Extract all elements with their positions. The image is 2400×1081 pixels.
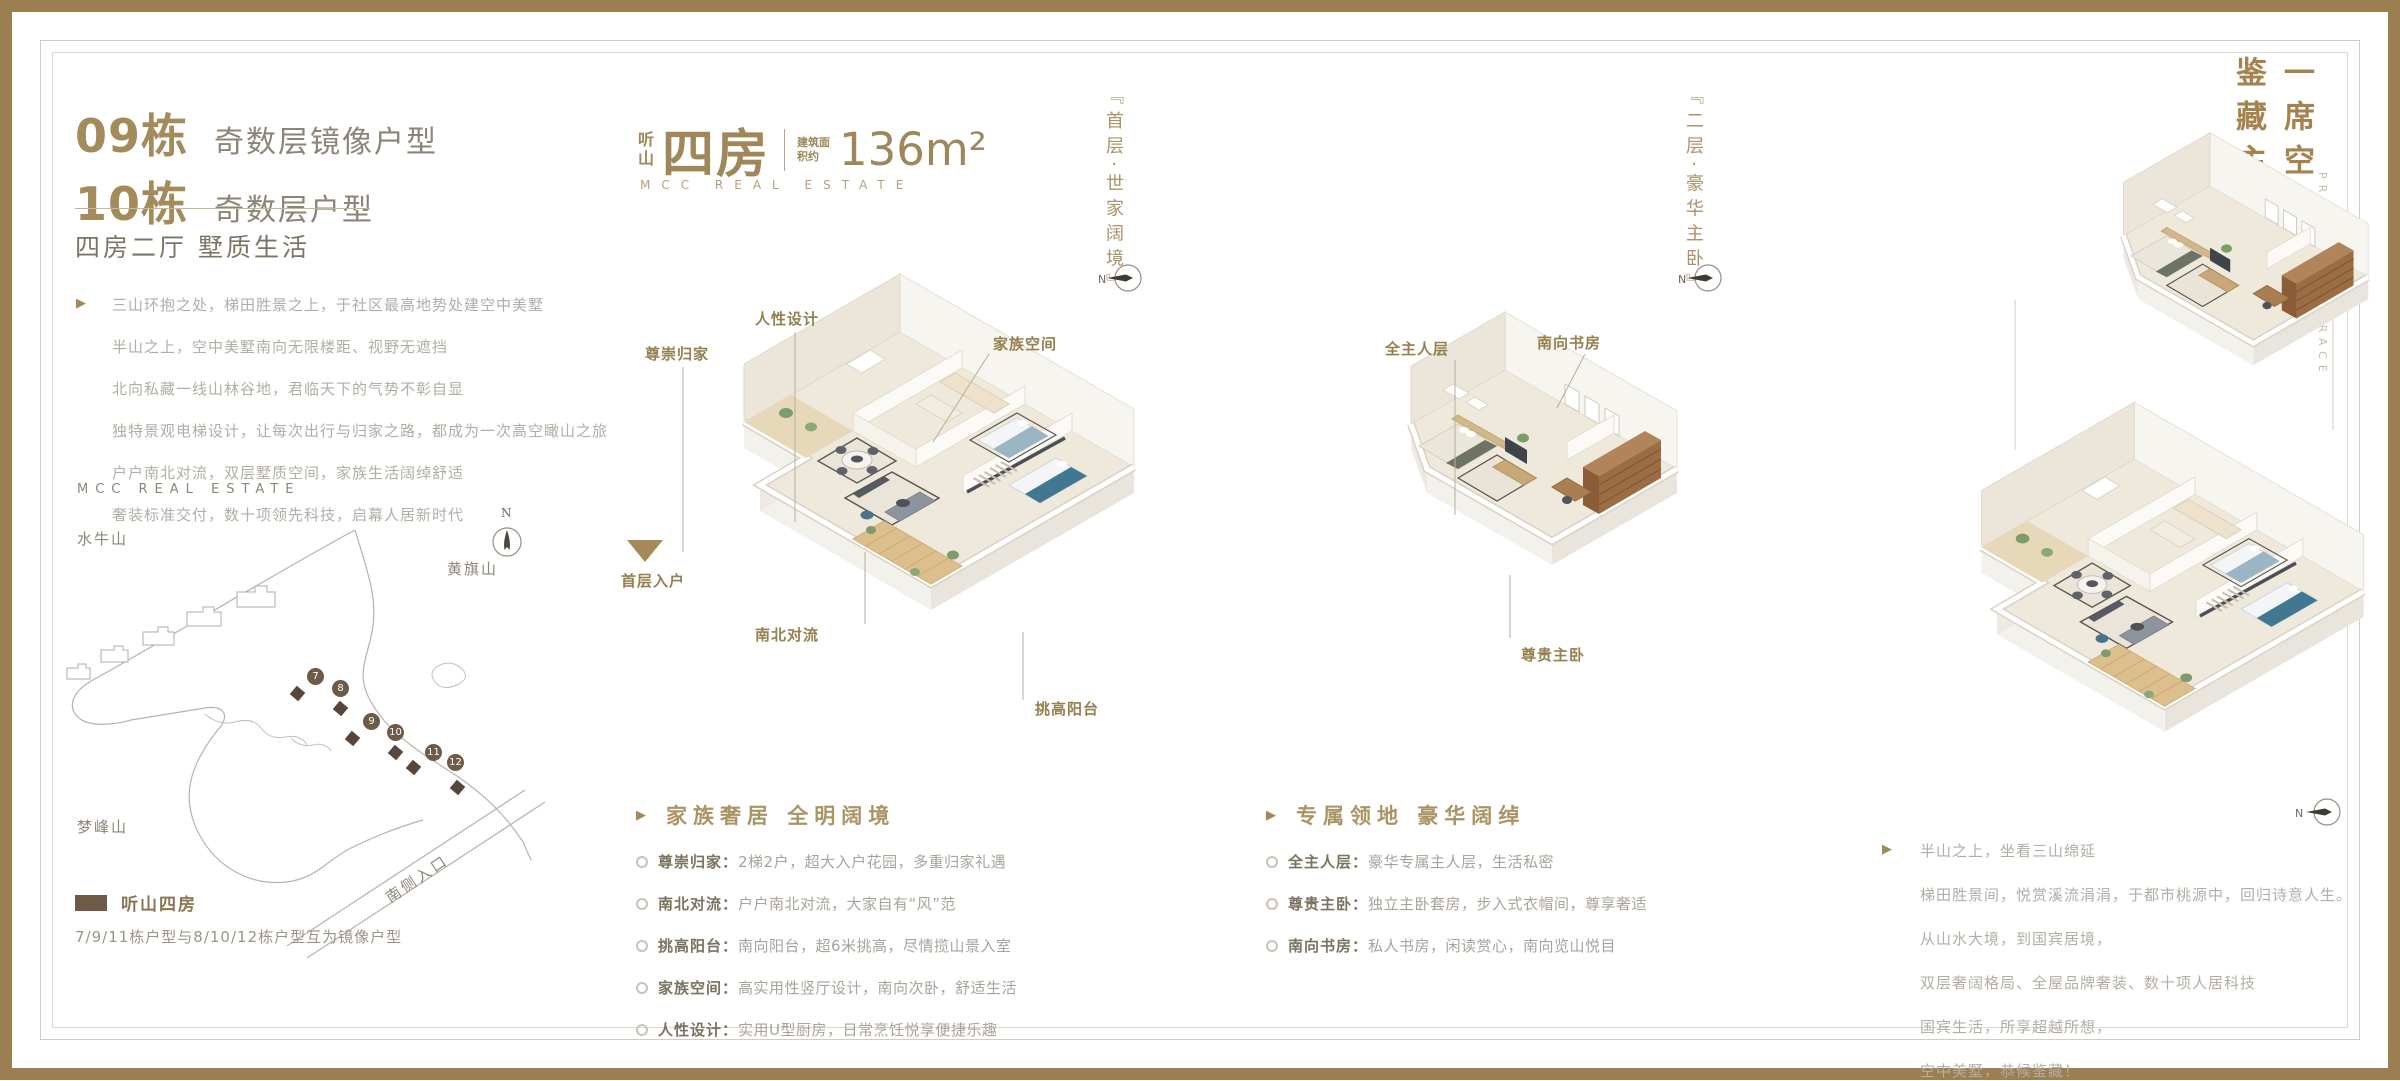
item-dot-icon: [1266, 898, 1278, 910]
unit-subtitle: 四房二厅 墅质生活: [75, 228, 310, 264]
building-09-number: 09栋: [75, 100, 188, 166]
building-10-number: 10栋: [75, 168, 188, 234]
heading-divider: [75, 208, 370, 209]
feature-item: 南北对流：户户南北对流，大家自有“风”范: [636, 893, 996, 914]
brochure-page: { "left": { "block1_num": "09栋", "block1…: [0, 0, 2400, 1080]
item-dot-icon: [636, 982, 648, 994]
item-label: 全主人层：: [1288, 851, 1368, 872]
intro-line: 北向私藏一线山林谷地，君临天下的气势不彰自显: [112, 378, 608, 399]
item-dot-icon: [636, 856, 648, 868]
legend-swatch: [75, 895, 107, 911]
building-09-type: 奇数层镜像户型: [214, 117, 438, 161]
floor2-label-zungui: 尊贵主卧: [1521, 646, 1585, 664]
feature-item: 家族空间：高实用性竖厅设计，南向次卧，舒适生活: [636, 977, 996, 998]
map-mountain-northwest: 水牛山: [77, 528, 128, 549]
building-number-7: 7: [307, 668, 324, 685]
list-arrow-icon: ▶: [636, 808, 652, 823]
map-mountain-southwest: 梦峰山: [77, 816, 128, 837]
floor1-label-jiazu: 家族空间: [993, 335, 1057, 353]
item-label: 尊贵主卧：: [1288, 893, 1368, 914]
outro-line: 梯田胜景间，悦赏溪流涓涓，于都市桃源中，回归诗意人生。: [1920, 884, 2352, 905]
intro-line: 独特景观电梯设计，让每次出行与归家之路，都成为一次高空瞰山之旅: [112, 420, 608, 441]
outro-line: 国宾生活，所享超越所想，: [1920, 1016, 2352, 1037]
floor1-list-heading: 家族奢居 全明阔境: [666, 800, 895, 830]
intro-line: 户户南北对流，双层墅质空间，家族生活阔绰舒适: [112, 462, 608, 483]
map-legend: 听山四房: [75, 890, 197, 915]
brand-wordmark: MCC REAL ESTATE: [77, 482, 300, 497]
feature-item: 尊贵主卧：独立主卧套房，步入式衣帽间，尊享奢适: [1266, 893, 1626, 914]
item-dot-icon: [636, 898, 648, 910]
item-dot-icon: [1266, 940, 1278, 952]
floor2-list-heading: 专属领地 豪华阔绰: [1296, 800, 1525, 830]
feature-item: 尊崇归家：2梯2户，超大入户花园，多重归家礼遇: [636, 851, 996, 872]
item-label: 家族空间：: [658, 977, 738, 998]
item-text: 实用U型厨房，日常烹饪悦享便捷乐趣: [738, 1019, 997, 1040]
product-title: 听山 四房 建筑面积约 136m²: [638, 112, 987, 187]
floor1-entry-label: 首层入户: [621, 572, 685, 590]
product-title-brand: MCC REAL ESTATE: [640, 178, 914, 192]
svg-text:N: N: [1678, 273, 1686, 286]
outro-line: 空中美墅，恭候鉴藏！: [1920, 1060, 2352, 1081]
item-label: 人性设计：: [658, 1019, 738, 1040]
site-map: N 水牛山 黄旗山 梦峰山 南侧入口 7 8 9 10 11 12 听山四房 7…: [55, 500, 575, 960]
item-text: 户户南北对流，大家自有“风”范: [738, 893, 956, 914]
product-title-main: 四房: [662, 112, 770, 187]
duplex-render: N: [1865, 120, 2395, 840]
product-title-prefix: 听山: [638, 131, 656, 168]
outro-line: 双层奢阔格局、全屋品牌奢装、数十项人居科技: [1920, 972, 2352, 993]
area-badge: 建筑面积约: [797, 136, 833, 164]
outro-line: 从山水大境，到国宾居境，: [1920, 928, 2352, 949]
building-number-9: 9: [363, 713, 380, 730]
outro-arrow-icon: ▶: [1882, 842, 1892, 857]
item-text: 独立主卧套房，步入式衣帽间，尊享奢适: [1368, 893, 1647, 914]
item-text: 豪华专属主人层，生活私密: [1368, 851, 1554, 872]
area-value: 136m²: [839, 123, 987, 176]
floor1-label-tiaogao: 挑高阳台: [1035, 700, 1099, 718]
feature-item: 挑高阳台：南向阳台，超6米挑高，尽情揽山景入室: [636, 935, 996, 956]
building-number-12: 12: [447, 754, 464, 771]
floor2-list-heading-row: ▶ 专属领地 豪华阔绰: [1266, 800, 1626, 830]
map-mountain-east: 黄旗山: [447, 558, 498, 579]
feature-item: 全主人层：豪华专属主人层，生活私密: [1266, 851, 1626, 872]
intro-line: 三山环抱之处，梯田胜景之上，于社区最高地势处建空中美墅: [112, 294, 608, 315]
intro-arrow-icon: ▶: [76, 296, 86, 311]
floor1-feature-list: ▶ 家族奢居 全明阔境 尊崇归家：2梯2户，超大入户花园，多重归家礼遇 南北对流…: [636, 800, 996, 1040]
item-label: 尊崇归家：: [658, 851, 738, 872]
item-text: 南向阳台，超6米挑高，尽情揽山景入室: [738, 935, 1012, 956]
floor1-label-renxing: 人性设计: [755, 310, 819, 328]
floor1-list-heading-row: ▶ 家族奢居 全明阔境: [636, 800, 996, 830]
entry-triangle-icon: [627, 540, 663, 562]
floor2-plan: 全主人层 南向书房 尊贵主卧: [1255, 290, 1715, 710]
building-10-type: 奇数层户型: [214, 185, 374, 229]
feature-item: 南向书房：私人书房，闲读赏心，南向览山悦目: [1266, 935, 1626, 956]
building-number-10: 10: [387, 724, 404, 741]
outro-paragraph: 半山之上，坐看三山绵延 梯田胜景间，悦赏溪流涓涓，于都市桃源中，回归诗意人生。 …: [1920, 840, 2352, 1081]
floor1-label-nanbei: 南北对流: [755, 626, 819, 644]
title-divider: [784, 129, 785, 171]
item-text: 2梯2户，超大入户花园，多重归家礼遇: [738, 851, 1006, 872]
legend-label: 听山四房: [121, 890, 197, 915]
outro-line: 半山之上，坐看三山绵延: [1920, 840, 2352, 861]
floor1-label-zuncong: 尊崇归家: [645, 345, 709, 363]
map-note: 7/9/11栋户型与8/10/12栋户型互为镜像户型: [75, 926, 402, 947]
floor2-label-quanzhu: 全主人层: [1384, 340, 1449, 358]
item-text: 私人书房，闲读赏心，南向览山悦目: [1368, 935, 1616, 956]
floor1-plan: 人性设计 尊崇归家 家族空间 南北对流 挑高阳台 首层入户: [615, 252, 1175, 762]
item-label: 挑高阳台：: [658, 935, 738, 956]
item-dot-icon: [636, 1024, 648, 1036]
unit-heading: 09栋 奇数层镜像户型 10栋 奇数层户型: [75, 100, 438, 234]
list-arrow-icon: ▶: [1266, 808, 1282, 823]
item-label: 南向书房：: [1288, 935, 1368, 956]
building-number-11: 11: [425, 744, 442, 761]
intro-line: 半山之上，空中美墅南向无限楼距、视野无遮挡: [112, 336, 608, 357]
feature-item: 人性设计：实用U型厨房，日常烹饪悦享便捷乐趣: [636, 1019, 996, 1040]
svg-text:N: N: [2295, 807, 2303, 820]
building-number-8: 8: [332, 680, 349, 697]
item-text: 高实用性竖厅设计，南向次卧，舒适生活: [738, 977, 1017, 998]
item-dot-icon: [636, 940, 648, 952]
floor2-label-nanxiang: 南向书房: [1537, 334, 1601, 352]
item-dot-icon: [1266, 856, 1278, 868]
floor2-feature-list: ▶ 专属领地 豪华阔绰 全主人层：豪华专属主人层，生活私密 尊贵主卧：独立主卧套…: [1266, 800, 1626, 956]
map-compass-label: N: [501, 506, 512, 520]
item-label: 南北对流：: [658, 893, 738, 914]
